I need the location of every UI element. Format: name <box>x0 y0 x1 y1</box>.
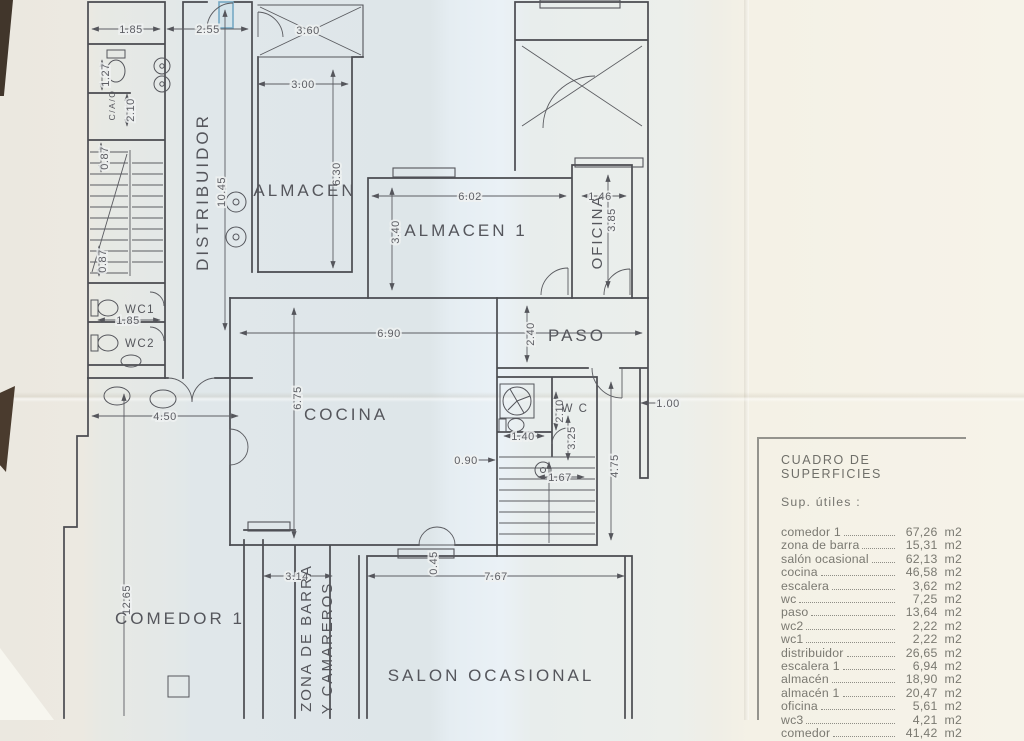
dim-label: 1.85 <box>116 315 139 327</box>
dotted-leader <box>821 575 895 576</box>
area-value: 2,22 <box>898 633 938 646</box>
toilet-icon <box>499 419 524 433</box>
dotted-leader <box>872 562 895 563</box>
area-value: 6,94 <box>898 660 938 673</box>
surface-table-row: wc1 2,22 m2 <box>781 633 962 646</box>
toilet-icon <box>91 335 118 351</box>
area-unit: m2 <box>945 673 962 686</box>
surface-table-row: escalera 1 6,94 m2 <box>781 660 962 673</box>
area-value: 46,58 <box>898 566 938 579</box>
area-unit: m2 <box>945 620 962 633</box>
dim-label: 3.40 <box>390 220 402 243</box>
door-arcs <box>150 2 630 545</box>
dim-label: 6.02 <box>458 191 481 203</box>
area-value: 3,62 <box>898 580 938 593</box>
room-label-salon: SALON OCASIONAL <box>388 666 595 685</box>
area-value: 7,25 <box>898 593 938 606</box>
dim-label: 7.67 <box>484 571 507 583</box>
dotted-leader <box>821 709 895 710</box>
surface-table: CUADRO DE SUPERFICIES Sup. útiles : come… <box>757 437 966 720</box>
table-icon <box>150 390 176 408</box>
area-value: 2,22 <box>898 620 938 633</box>
dim-label: 0.90 <box>454 455 477 467</box>
surface-table-row: wc2 2,22 m2 <box>781 620 962 633</box>
area-value: 67,26 <box>898 526 938 539</box>
room-label-camareros: Y CAMAREROS <box>319 582 336 715</box>
room-name: almacén 1 <box>781 687 840 700</box>
dotted-leader <box>811 615 894 616</box>
surface-table-rows: comedor 1 67,26 m2 zona de barra 15,31 m… <box>781 526 962 741</box>
area-unit: m2 <box>945 539 962 552</box>
surface-table-row: paso 13,64 m2 <box>781 606 962 619</box>
dim-label: 1.67 <box>548 472 571 484</box>
room-name: wc1 <box>781 633 803 646</box>
room-name: wc3 <box>781 714 803 727</box>
dim-label: 6.75 <box>292 386 304 409</box>
area-unit: m2 <box>945 647 962 660</box>
surface-table-row: almacén 18,90 m2 <box>781 673 962 686</box>
area-unit: m2 <box>945 580 962 593</box>
dotted-leader <box>832 589 894 590</box>
dim-label: 0.87 <box>97 249 109 272</box>
surface-table-row: zona de barra 15,31 m2 <box>781 539 962 552</box>
dotted-leader <box>806 629 894 630</box>
room-label-wc: W C <box>562 403 589 415</box>
dim-label: 3.60 <box>296 25 319 37</box>
dim-label: 6.90 <box>377 328 400 340</box>
surface-table-row: cocina 46,58 m2 <box>781 566 962 579</box>
dimension-labels: 1.85 2.55 3.60 3.00 1.27 2.10 0.87 0.87 … <box>97 24 680 615</box>
dim-label: 1.00 <box>656 398 679 410</box>
surface-table-row: salón ocasional 62,13 m2 <box>781 553 962 566</box>
room-label-aseo: C/A/O <box>107 90 117 121</box>
room-label-wc2: WC2 <box>125 338 155 350</box>
area-unit: m2 <box>945 700 962 713</box>
shower-icon <box>500 384 534 418</box>
room-name: zona de barra <box>781 539 859 552</box>
dim-label: 2.40 <box>525 322 537 345</box>
area-value: 62,13 <box>898 553 938 566</box>
area-value: 13,64 <box>898 606 938 619</box>
area-unit: m2 <box>945 526 962 539</box>
dotted-leader <box>862 548 894 549</box>
surface-table-title: CUADRO DE SUPERFICIES <box>781 453 962 481</box>
dim-label: 3.85 <box>606 208 618 231</box>
area-value: 20,47 <box>898 687 938 700</box>
area-unit: m2 <box>945 714 962 727</box>
toilet-icon <box>91 300 118 316</box>
room-name: paso <box>781 606 808 619</box>
room-name: comedor 1 <box>781 526 841 539</box>
room-label-cocina: COCINA <box>304 405 388 424</box>
photographed-floor-plan: { "plan": { "rooms": { "distribuidor": "… <box>0 0 1024 720</box>
area-unit: m2 <box>945 660 962 673</box>
room-label-almacen1: ALMACEN 1 <box>404 221 527 240</box>
surface-table-row: comedor 41,42 m2 <box>781 727 962 740</box>
dotted-leader <box>806 642 894 643</box>
dotted-leader <box>844 535 895 536</box>
room-name: escalera <box>781 580 829 593</box>
dotted-leader <box>833 736 894 737</box>
room-label-wc1: WC1 <box>125 304 155 316</box>
room-name: comedor <box>781 727 830 740</box>
dotted-leader <box>843 696 895 697</box>
room-label-paso: PASO <box>548 326 606 345</box>
surface-table-row: escalera 3,62 m2 <box>781 580 962 593</box>
area-unit: m2 <box>945 606 962 619</box>
area-unit: m2 <box>945 727 962 740</box>
room-name: salón ocasional <box>781 553 869 566</box>
room-name: cocina <box>781 566 818 579</box>
room-name: distribuidor <box>781 647 844 660</box>
room-label-distribuidor: DISTRIBUIDOR <box>193 113 212 271</box>
surface-table-row: wc 7,25 m2 <box>781 593 962 606</box>
area-unit: m2 <box>945 553 962 566</box>
pillar-symbol <box>168 676 189 697</box>
dim-label: 3.00 <box>291 79 314 91</box>
dim-label: 10.45 <box>216 177 228 207</box>
area-value: 4,21 <box>898 714 938 727</box>
room-label-oficina: OFICINA <box>589 195 606 270</box>
dim-label: 2.55 <box>196 24 219 36</box>
surface-table-row: comedor 1 67,26 m2 <box>781 526 962 539</box>
dim-label: 4.75 <box>609 454 621 477</box>
room-name: escalera 1 <box>781 660 840 673</box>
sink-icon <box>226 192 246 247</box>
dim-label: 1.85 <box>119 24 142 36</box>
dotted-leader <box>806 723 894 724</box>
area-value: 15,31 <box>898 539 938 552</box>
surface-table-row: oficina 5,61 m2 <box>781 700 962 713</box>
room-name: wc2 <box>781 620 803 633</box>
sink-icon <box>154 58 170 92</box>
area-value: 41,42 <box>898 727 938 740</box>
area-value: 26,65 <box>898 647 938 660</box>
dotted-leader <box>847 656 895 657</box>
dim-label: 0.87 <box>99 146 111 169</box>
room-name: almacén <box>781 673 829 686</box>
dim-label: 3.25 <box>566 426 578 449</box>
dim-label: 1.40 <box>511 431 534 443</box>
area-unit: m2 <box>945 566 962 579</box>
room-name: oficina <box>781 700 818 713</box>
area-value: 18,90 <box>898 673 938 686</box>
dotted-leader <box>843 669 895 670</box>
table-icon <box>104 387 130 405</box>
area-value: 5,61 <box>898 700 938 713</box>
dim-label: 1.27 <box>100 63 112 86</box>
surface-table-row: distribuidor 26,65 m2 <box>781 647 962 660</box>
surface-table-subtitle: Sup. útiles : <box>781 495 962 509</box>
dim-label: 0.45 <box>428 551 440 574</box>
area-unit: m2 <box>945 633 962 646</box>
room-name: wc <box>781 593 796 606</box>
dotted-leader <box>799 602 894 603</box>
area-unit: m2 <box>945 687 962 700</box>
room-label-comedor1: COMEDOR 1 <box>115 609 245 628</box>
surface-table-row: wc3 4,21 m2 <box>781 714 962 727</box>
area-unit: m2 <box>945 593 962 606</box>
surface-table-row: almacén 1 20,47 m2 <box>781 687 962 700</box>
room-label-zona-de-barra: ZONA DE BARRA <box>298 564 315 712</box>
room-label-almacen: ALMACEN <box>253 181 356 200</box>
dotted-leader <box>832 682 895 683</box>
dim-label: 4.50 <box>153 411 176 423</box>
dim-label: 2.10 <box>125 98 137 121</box>
